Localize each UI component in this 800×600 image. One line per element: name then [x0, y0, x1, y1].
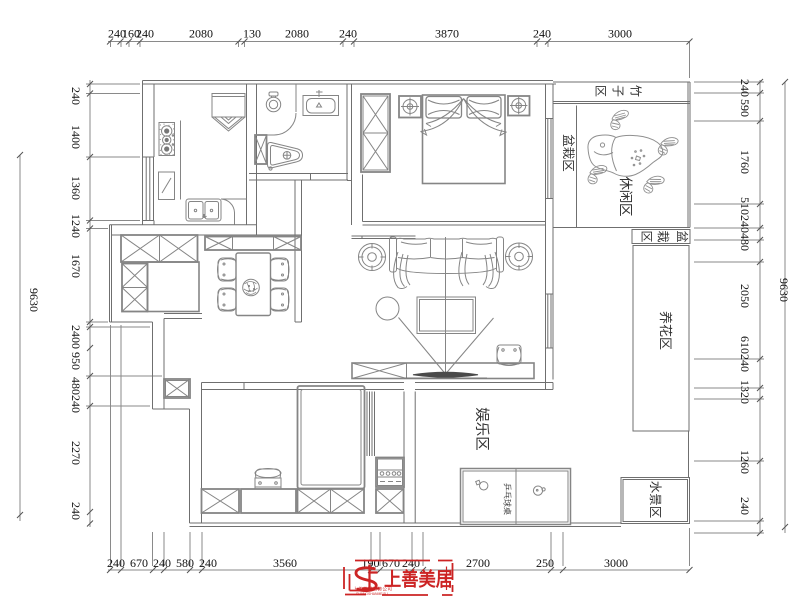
svg-text:2700: 2700 [466, 556, 490, 570]
svg-text:娱乐区: 娱乐区 [473, 407, 490, 451]
svg-text:1400: 1400 [69, 125, 83, 149]
svg-text:1360: 1360 [69, 176, 83, 200]
svg-text:240: 240 [199, 556, 217, 570]
svg-text:250: 250 [536, 556, 554, 570]
svg-text:休闲区: 休闲区 [618, 177, 633, 217]
svg-text:区: 区 [594, 85, 608, 97]
svg-text:2050: 2050 [738, 284, 752, 308]
svg-text:1760: 1760 [738, 150, 752, 174]
svg-text:3560: 3560 [273, 556, 297, 570]
svg-text:950: 950 [69, 352, 83, 370]
svg-text:养花区: 养花区 [658, 311, 673, 350]
svg-text:盆栽区: 盆栽区 [561, 134, 576, 172]
svg-text:水景区: 水景区 [648, 481, 662, 519]
svg-text:480240: 480240 [69, 377, 83, 413]
svg-text:670: 670 [382, 556, 400, 570]
svg-text:580: 580 [176, 556, 194, 570]
svg-text:240: 240 [533, 27, 551, 41]
svg-text:240: 240 [107, 556, 125, 570]
svg-text:2080: 2080 [189, 27, 213, 41]
svg-text:240: 240 [402, 556, 420, 570]
svg-text:竹: 竹 [629, 85, 643, 97]
svg-text:1240: 1240 [69, 214, 83, 238]
svg-text:子: 子 [611, 85, 625, 97]
svg-text:670: 670 [130, 556, 148, 570]
svg-text:区: 区 [640, 230, 654, 242]
svg-text:栽: 栽 [656, 230, 670, 242]
svg-text:1670: 1670 [69, 254, 83, 278]
svg-text:240: 240 [69, 87, 83, 105]
svg-text:上善美居: 上善美居 [384, 568, 453, 591]
svg-text:240: 240 [136, 27, 154, 41]
svg-text:9630: 9630 [27, 288, 41, 312]
svg-text:SHANGSHANMEIJU: SHANGSHANMEIJU [356, 592, 388, 596]
svg-text:乒乓球桌: 乒乓球桌 [503, 483, 513, 515]
svg-text:510240480: 510240480 [738, 197, 752, 251]
svg-text:590: 590 [738, 99, 752, 117]
svg-text:1260: 1260 [738, 450, 752, 474]
svg-text:240: 240 [738, 79, 752, 97]
svg-text:610240: 610240 [738, 336, 752, 372]
svg-text:3000: 3000 [608, 27, 632, 41]
svg-text:2400: 2400 [69, 325, 83, 349]
svg-text:3000: 3000 [604, 556, 628, 570]
svg-text:240: 240 [69, 502, 83, 520]
svg-text:130: 130 [243, 27, 261, 41]
svg-text:240: 240 [738, 497, 752, 515]
svg-text:2080: 2080 [285, 27, 309, 41]
svg-text:9630: 9630 [777, 278, 791, 302]
svg-text:盆: 盆 [675, 230, 689, 242]
svg-text:1320: 1320 [738, 380, 752, 404]
svg-text:240: 240 [153, 556, 171, 570]
svg-text:240: 240 [339, 27, 357, 41]
svg-text:3870: 3870 [435, 27, 459, 41]
svg-text:2270: 2270 [69, 441, 83, 465]
